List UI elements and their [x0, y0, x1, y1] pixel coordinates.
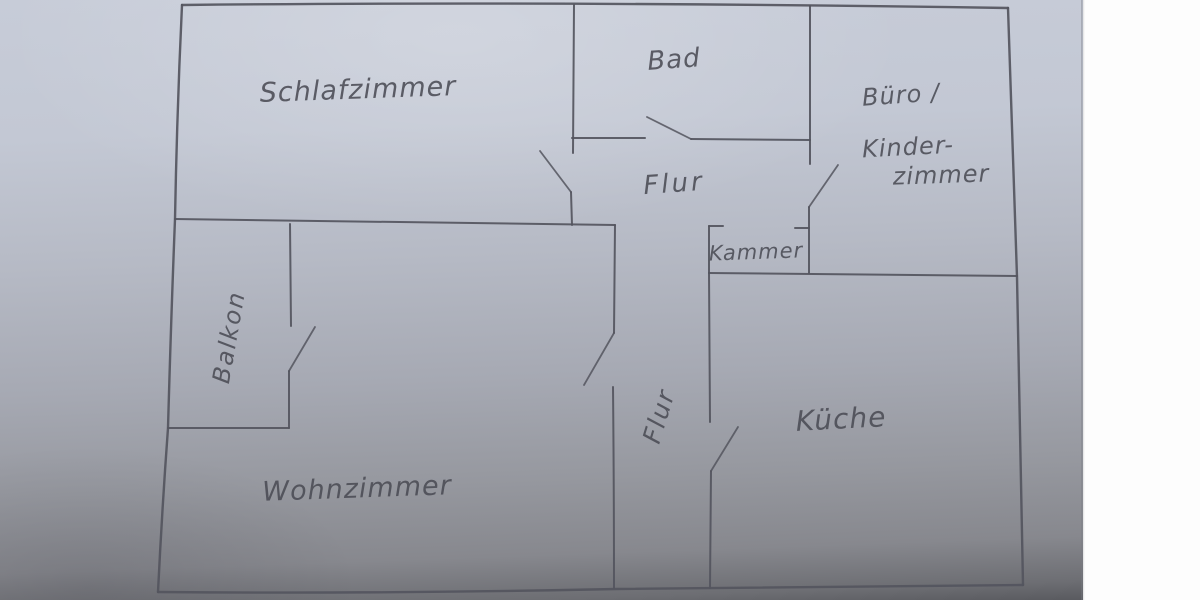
room-label-flur-upper: Flur [642, 167, 705, 201]
wall-outer-top [182, 4, 1008, 8]
wall-flur-left-lower [613, 387, 614, 588]
room-label-bad: Bad [646, 43, 701, 77]
room-label-buero: Büro / [861, 78, 941, 111]
wall-outer-bottom [158, 585, 1023, 593]
room-label-kammer: Kammer [708, 238, 803, 265]
room-label-kinder: Kinder- [861, 131, 954, 164]
floor-plan-drawing [0, 0, 1200, 600]
room-label-kueche: Küche [795, 400, 887, 438]
room-label-kinder-zimmer: zimmer [892, 159, 990, 190]
wall-buero-bottom [709, 273, 1017, 276]
wall-flur-right-upper [709, 273, 710, 422]
wall-bad-bottom-right [691, 139, 810, 140]
door-kueche [711, 427, 738, 471]
floor-plan-photo: Schlafzimmer Bad Büro / Kinder- zimmer F… [0, 0, 1200, 600]
wall-balkon-divider [290, 224, 291, 326]
wall-flur-right-lower [710, 471, 711, 588]
wall-wohnzimmer-top [175, 219, 615, 225]
door-buero [809, 165, 838, 207]
door-balkon [289, 327, 315, 371]
wall-outer-left [158, 5, 182, 592]
door-schlafzimmer [540, 151, 571, 192]
door-bad [647, 117, 691, 139]
room-label-wohnzimmer: Wohnzimmer [262, 470, 452, 508]
wall-schlafzimmer-door-stub [571, 192, 572, 225]
wall-outer-right [1008, 8, 1023, 585]
door-wohnzimmer [584, 333, 614, 385]
wall-schlafzimmer-right [573, 5, 574, 153]
wall-flur-left-upper [614, 225, 615, 333]
